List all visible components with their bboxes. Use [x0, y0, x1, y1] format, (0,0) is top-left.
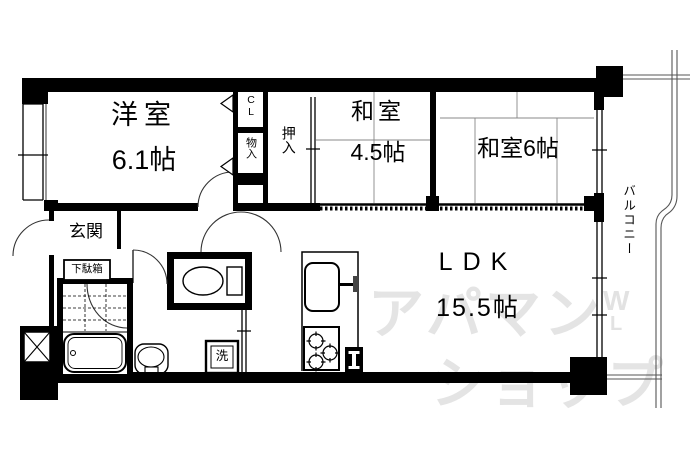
entrance-door-arc	[13, 220, 49, 256]
genkan-label: 玄関	[61, 223, 111, 241]
balcony-right-rail-outer	[661, 50, 677, 408]
closet-door-triangles	[221, 95, 233, 175]
closet-strip-left-wall	[233, 92, 238, 211]
getabako-label: 下駄箱	[64, 264, 110, 275]
floorplan-canvas: アパマン ショップ W L	[0, 0, 690, 460]
balcony-label: バルコニー	[621, 184, 634, 257]
cl-label: CL	[245, 94, 256, 118]
top-left-corner	[22, 78, 48, 104]
yoshitsu-window	[18, 104, 48, 200]
closet-strip-right-wall	[263, 92, 268, 211]
ldk-balcony-glass-door	[592, 222, 607, 357]
balcony-top-rail	[623, 75, 690, 79]
stove-icon	[304, 327, 340, 372]
washitsu6-window	[592, 110, 607, 193]
balcony-right-rail-inner	[656, 50, 672, 408]
oshiire-sliding-door	[306, 97, 320, 203]
washitsu6-label: 和室6帖	[443, 136, 593, 160]
ldk-size: 15.5帖	[406, 295, 550, 321]
cl-door-triangle-icon	[221, 95, 233, 112]
bathroom-floor	[63, 284, 127, 374]
ldk-label: LDK	[420, 249, 536, 275]
yoshitsu-label: 洋室	[92, 101, 196, 129]
laundry-label: 洗	[214, 350, 230, 363]
washbasin-icon	[135, 344, 168, 374]
kitchen-sink-icon	[305, 263, 358, 311]
shaft-x-icon	[24, 332, 50, 362]
yoshitsu-door-arc	[198, 172, 233, 207]
genkan-outer-wall	[49, 255, 54, 326]
balcony-bottom-rail	[607, 375, 662, 379]
washitsu-divider-wall	[430, 92, 436, 203]
yoshitsu-bottom-wall	[44, 203, 198, 211]
washroom-door-arc	[133, 250, 167, 284]
hall-door-arc	[241, 212, 281, 252]
monoire-label: 物入	[244, 137, 256, 159]
top-wall	[22, 78, 598, 92]
washitsu45-label: 和室	[335, 99, 421, 123]
bottom-right-corner	[570, 357, 607, 395]
yoshitsu-size: 6.1帖	[85, 146, 203, 174]
oshiire-label: 押入	[281, 126, 296, 154]
pipe-space-icon	[345, 347, 363, 373]
balcony-rails	[607, 50, 690, 408]
toilet-door-arc	[201, 212, 241, 252]
washitsu45-size: 4.5帖	[327, 140, 429, 164]
